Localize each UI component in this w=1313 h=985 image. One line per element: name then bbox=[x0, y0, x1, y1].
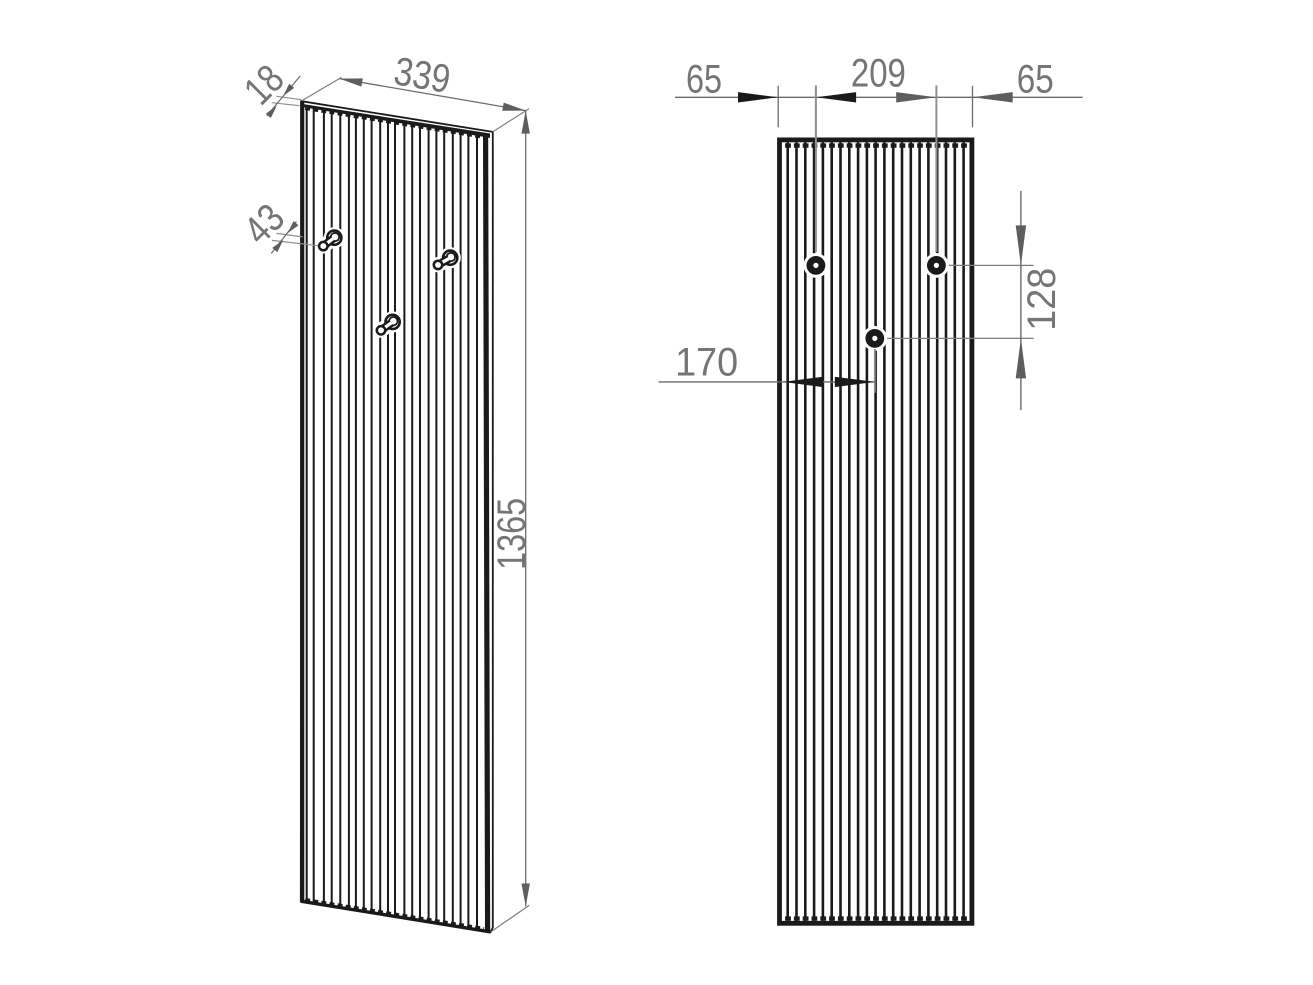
svg-text:170: 170 bbox=[675, 341, 738, 385]
svg-text:209: 209 bbox=[851, 52, 906, 96]
svg-text:65: 65 bbox=[1017, 58, 1054, 102]
svg-text:339: 339 bbox=[391, 49, 453, 102]
svg-text:43: 43 bbox=[236, 196, 293, 253]
svg-text:65: 65 bbox=[686, 57, 722, 101]
svg-text:18: 18 bbox=[236, 57, 293, 114]
svg-text:1365: 1365 bbox=[490, 498, 534, 570]
svg-text:128: 128 bbox=[1020, 268, 1064, 331]
